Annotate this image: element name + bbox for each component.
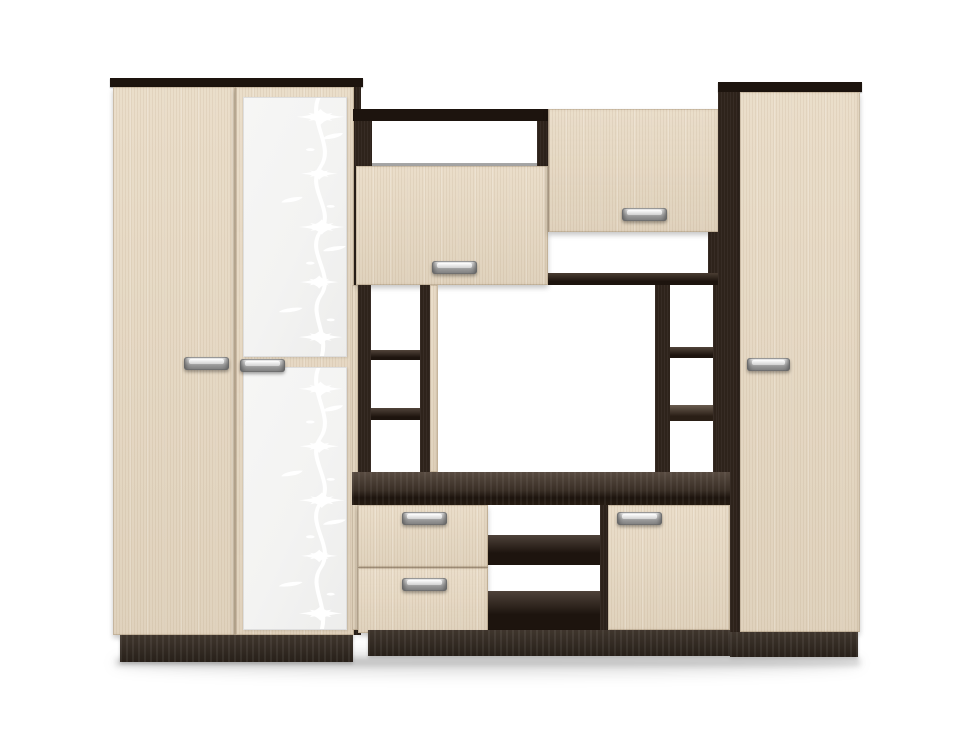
product-photo-stage [0, 0, 970, 753]
upper-left-door-handle [432, 261, 477, 274]
wardrobe-right-door-handle [240, 359, 285, 372]
center-open-frame-right [600, 505, 608, 632]
left-column-upright-inner [420, 285, 430, 472]
top-left-niche-frame-right [537, 121, 548, 166]
drawer-bottom [358, 567, 488, 633]
right-cabinet-top-panel [718, 82, 862, 92]
tv-stand-top [352, 472, 730, 505]
right-cabinet-plinth [730, 632, 858, 657]
upper-right-door-handle [622, 208, 667, 221]
top-right-niche-shelf [548, 273, 730, 285]
right-cabinet-side-panel-lower [730, 472, 740, 632]
left-column-shelf-2 [371, 408, 420, 420]
top-left-niche-frame-left [355, 121, 372, 166]
wardrobe-top-panel [110, 78, 363, 87]
wardrobe-glass-panel-lower [243, 367, 347, 630]
left-column-shelf-1 [371, 350, 420, 360]
left-column-wood-divider [430, 285, 438, 472]
right-column-shelf-1 [670, 347, 713, 358]
wardrobe-left-door-handle [184, 357, 229, 370]
right-cabinet-door-handle [747, 358, 790, 371]
left-column-upright-outer [358, 285, 371, 472]
lower-right-door-handle [617, 512, 662, 525]
center-open-shelf-lower [488, 591, 600, 630]
right-column-upright-inner [655, 285, 670, 472]
wardrobe-glass-panel-upper [243, 97, 347, 357]
drawer-top-handle [402, 512, 447, 525]
floral-vine-pattern [244, 368, 346, 629]
wardrobe-plinth [120, 635, 353, 662]
center-plinth [368, 630, 730, 656]
center-top-beam [353, 109, 548, 121]
right-column-shelf-2 [670, 405, 713, 421]
drawer-bottom-handle [402, 578, 447, 591]
center-open-shelf-upper [488, 535, 600, 565]
floral-vine-pattern [244, 98, 346, 356]
right-cabinet-side-panel-upper [718, 92, 740, 472]
